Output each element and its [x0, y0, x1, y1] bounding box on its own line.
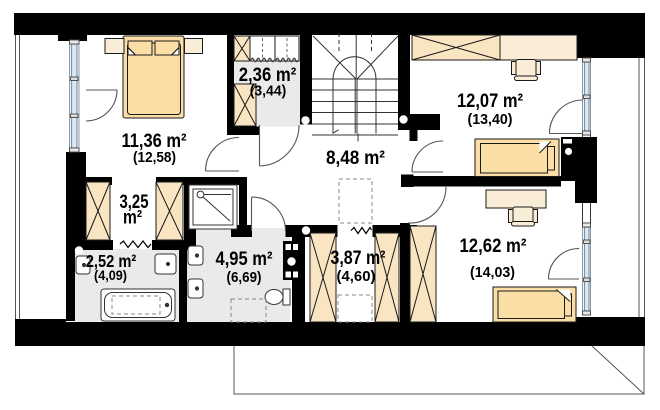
- svg-text:4,95 m²: 4,95 m²: [216, 249, 273, 270]
- svg-text:(4,60): (4,60): [337, 269, 376, 285]
- svg-text:3,87 m²: 3,87 m²: [331, 248, 386, 269]
- svg-text:(3,44): (3,44): [250, 84, 287, 100]
- svg-text:(6,69): (6,69): [227, 270, 262, 286]
- svg-text:8,48 m²: 8,48 m²: [326, 148, 385, 169]
- svg-text:m²: m²: [123, 208, 142, 229]
- svg-text:12,62 m²: 12,62 m²: [460, 236, 527, 257]
- svg-text:(14,03): (14,03): [470, 265, 515, 281]
- svg-text:11,36 m²: 11,36 m²: [122, 131, 187, 152]
- svg-text:12,07 m²: 12,07 m²: [457, 91, 523, 112]
- svg-text:(12,58): (12,58): [133, 150, 176, 166]
- svg-text:(13,40): (13,40): [468, 112, 513, 128]
- svg-text:(4,09): (4,09): [94, 267, 127, 283]
